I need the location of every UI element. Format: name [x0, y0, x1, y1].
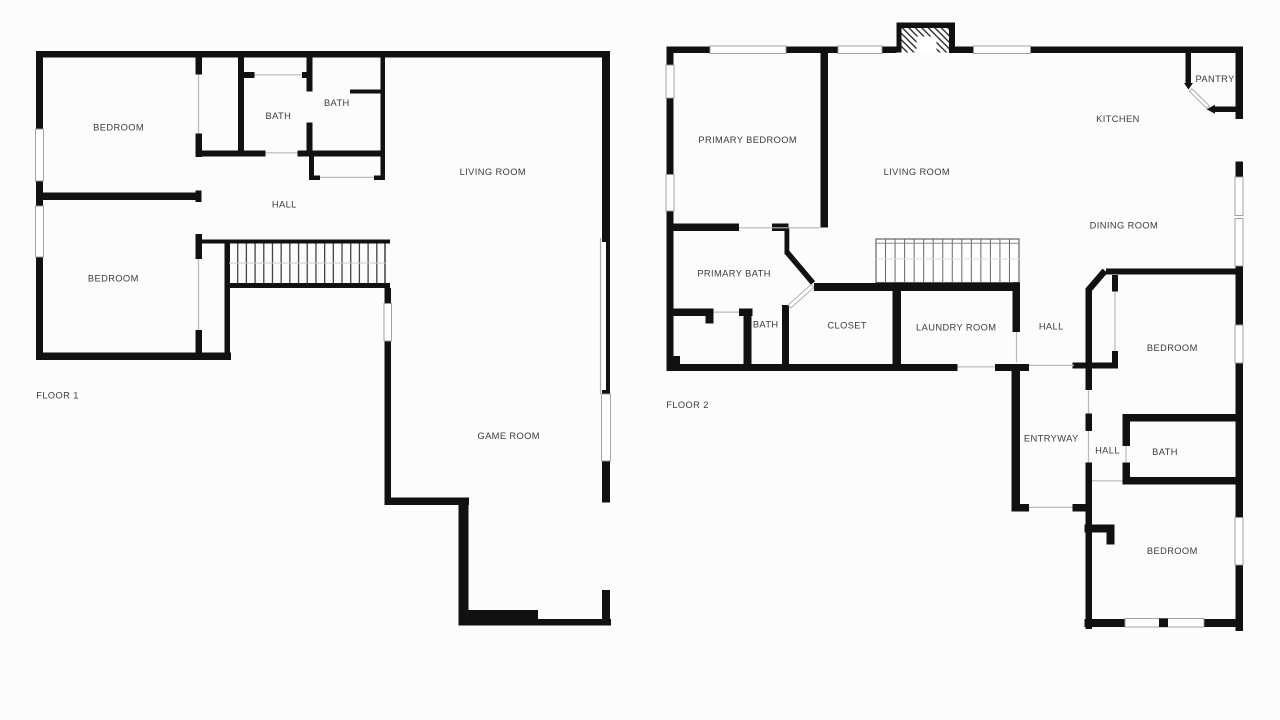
svg-text:PRIMARY BEDROOM: PRIMARY BEDROOM	[698, 135, 797, 145]
svg-text:FLOOR 1: FLOOR 1	[36, 391, 79, 401]
svg-text:GAME ROOM: GAME ROOM	[477, 431, 539, 441]
svg-text:HALL: HALL	[1095, 446, 1120, 456]
svg-text:FLOOR 2: FLOOR 2	[666, 400, 709, 410]
svg-text:LIVING ROOM: LIVING ROOM	[884, 167, 950, 177]
svg-text:CLOSET: CLOSET	[827, 321, 867, 331]
svg-text:HALL: HALL	[1039, 321, 1064, 331]
svg-text:BEDROOM: BEDROOM	[88, 274, 139, 284]
svg-text:PRIMARY BATH: PRIMARY BATH	[697, 269, 771, 279]
svg-text:BEDROOM: BEDROOM	[93, 123, 144, 133]
svg-text:HALL: HALL	[272, 200, 297, 210]
svg-text:BATH: BATH	[1152, 447, 1178, 457]
svg-text:KITCHEN: KITCHEN	[1096, 114, 1140, 124]
svg-text:BATH: BATH	[324, 98, 350, 108]
svg-text:BATH: BATH	[753, 319, 779, 329]
svg-text:DINING ROOM: DINING ROOM	[1090, 220, 1158, 230]
svg-text:PANTRY: PANTRY	[1195, 74, 1234, 84]
svg-text:ENTRYWAY: ENTRYWAY	[1024, 433, 1079, 443]
svg-text:LAUNDRY ROOM: LAUNDRY ROOM	[916, 323, 996, 333]
svg-text:BATH: BATH	[266, 111, 292, 121]
svg-text:LIVING ROOM: LIVING ROOM	[460, 167, 526, 177]
svg-text:BEDROOM: BEDROOM	[1147, 546, 1198, 556]
svg-text:BEDROOM: BEDROOM	[1147, 343, 1198, 353]
